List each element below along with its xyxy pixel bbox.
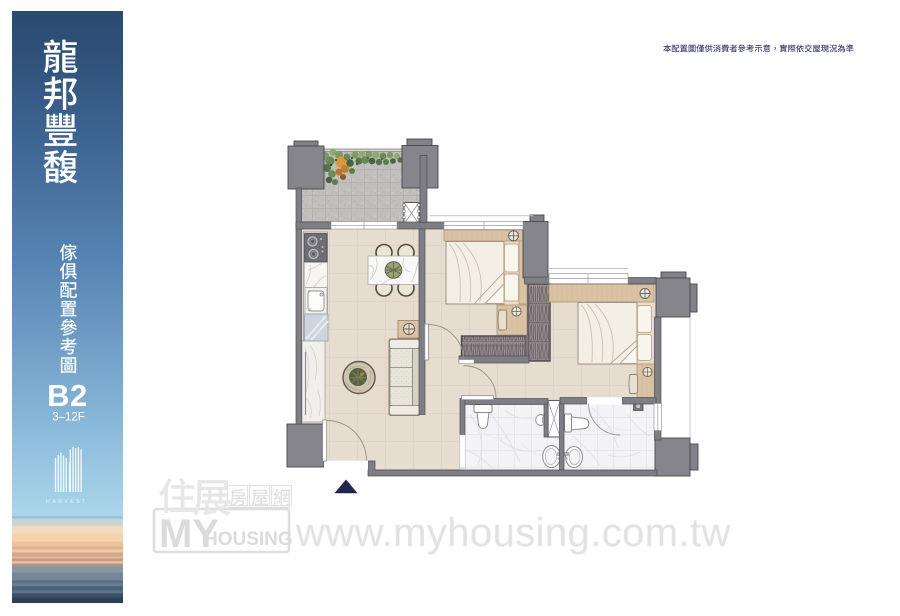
svg-text:HARVEST: HARVEST xyxy=(46,499,88,505)
svg-text:3–12F: 3–12F xyxy=(52,412,85,424)
svg-text:HOUSING: HOUSING xyxy=(204,529,293,550)
svg-text:www.myhousing.com.tw: www.myhousing.com.tw xyxy=(295,511,731,555)
svg-text:B2: B2 xyxy=(47,378,88,413)
